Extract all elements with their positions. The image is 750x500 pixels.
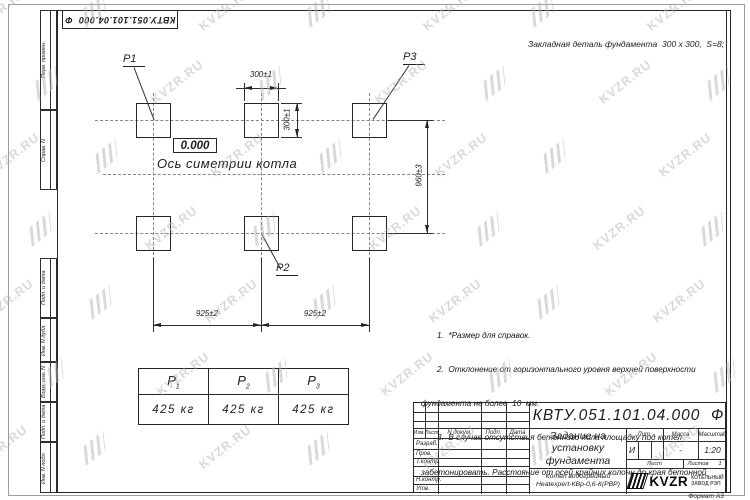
side-column-divider — [50, 319, 51, 361]
dimension-arrow — [425, 120, 429, 128]
dimension-arrow — [261, 323, 269, 327]
dimension-arrow — [253, 323, 261, 327]
titleblock-line — [638, 441, 639, 459]
tb-title-line: установку — [552, 442, 604, 455]
load-table-value: 425 кг — [209, 395, 279, 425]
tb-scale-value: 1:20 — [698, 441, 727, 459]
foundation-pad-p3 — [352, 103, 387, 138]
side-column-divider — [50, 111, 51, 189]
tb-col-izm-list: Изм.Лист — [414, 428, 438, 438]
side-column-label: Перв. примен. — [41, 11, 50, 109]
tb-sig-prov: Пров. — [416, 449, 438, 458]
side-column-divider — [50, 259, 51, 317]
side-column-label: Подп. и дата — [41, 259, 50, 317]
tb-doc-number: КВТУ.051.101.04.000 Ф — [530, 403, 727, 428]
side-column-inv-dubl: Инв. N дубл. — [40, 318, 57, 362]
tb-title-line: Задание на — [550, 430, 606, 443]
dimension-arrow — [153, 323, 161, 327]
centerline-boiler-axis — [103, 174, 445, 175]
tb-product-name: Котел водогрейный Heatexpert-КВр-0,6-К(Р… — [530, 468, 626, 494]
tb-sheets-value: 1 — [713, 459, 727, 468]
extension-line — [153, 258, 154, 332]
tb-title-line: фундамента — [546, 455, 611, 468]
tb-sig-nkontr: Н.контр. — [416, 476, 438, 484]
titleblock-line — [414, 412, 529, 413]
titleblock-line — [414, 421, 529, 422]
tb-sig-razrab: Разраб. — [416, 438, 438, 449]
tb-col-data: Дата — [506, 428, 529, 438]
tb-col-n-dokum: N докум. — [438, 428, 481, 438]
tb-product-line: Котел водогрейный — [546, 473, 611, 482]
company-name-line: ЗАВОД РЭП — [691, 481, 724, 487]
boiler-axis-label: Ось симетрии котла — [157, 156, 297, 171]
tb-scale-label: Масштаб — [698, 428, 727, 441]
pad-label-p1: P1 — [123, 53, 145, 67]
side-column-divider — [50, 403, 51, 441]
side-column-perv-primen: Перв. примен. — [40, 10, 57, 110]
side-column-label: Инв. N дубл. — [41, 319, 50, 361]
extension-line — [261, 258, 262, 332]
side-column-divider — [50, 443, 51, 492]
dim-pad-height: 300±1 — [283, 103, 292, 137]
level-mark: 0.000 — [173, 138, 217, 153]
title-block: Изм.Лист N докум. Подп. Дата Разраб. Про… — [413, 402, 726, 493]
extension-line — [369, 258, 370, 332]
dimension-arrow — [270, 86, 278, 90]
side-column-label: Инв. N подл. — [41, 443, 50, 492]
embed-detail-note: Закладная деталь фундамента 300 х 300, S… — [528, 39, 724, 49]
company-name: КОТЕЛЬНЫЙ ЗАВОД РЭП — [691, 475, 724, 487]
tb-mass-value: - — [663, 441, 698, 459]
side-column-label: Взам. инв. N — [41, 363, 50, 401]
note-line: 2. Отклонение от горизонтального уровня … — [421, 364, 726, 375]
side-column-sprav-n: Справ. N — [40, 110, 57, 190]
side-column-divider — [50, 363, 51, 401]
dimension-line-row-spacing — [427, 120, 428, 233]
dimension-arrow — [244, 86, 252, 90]
load-table-value: 425 кг — [279, 395, 349, 425]
dimension-arrow — [295, 103, 299, 111]
tb-lit-label: Лит. — [626, 428, 663, 441]
kvzr-logo-icon — [627, 473, 649, 489]
side-column-label: Справ. N — [41, 111, 50, 189]
foundation-pad-bottom-left — [136, 216, 171, 251]
foundation-pad-top-middle — [244, 103, 279, 138]
dim-row-spacing: 960±3 — [415, 156, 424, 196]
dimension-arrow — [295, 129, 299, 137]
load-table-header: P2 — [209, 369, 279, 395]
side-column-podp-data-1: Подп. и дата — [40, 258, 57, 318]
side-column-label: Подп. и дата — [41, 403, 50, 441]
load-table-header: P3 — [279, 369, 349, 395]
load-table-header-row: P1 P2 P3 — [139, 369, 349, 395]
dim-span-right: 925±2 — [290, 309, 340, 318]
load-table: P1 P2 P3 425 кг 425 кг 425 кг — [138, 368, 349, 425]
side-column-divider — [50, 11, 51, 109]
dim-span-left: 925±2 — [182, 309, 232, 318]
corner-doc-number-stamp: КВТУ.051.101.04.000 Ф — [62, 10, 178, 29]
dim-pad-width: 300±1 — [236, 70, 286, 79]
titleblock-line — [651, 441, 652, 459]
extension-line — [278, 83, 279, 101]
note-line: 1. *Размер для справок. — [421, 330, 726, 341]
tb-sheet-label: Лист — [626, 459, 683, 468]
tb-col-podp: Подп. — [481, 428, 506, 438]
load-table-value: 425 кг — [139, 395, 209, 425]
company-logo-cell: KVZR КОТЕЛЬНЫЙ ЗАВОД РЭП — [627, 468, 726, 494]
kvzr-logo-text: KVZR — [649, 474, 688, 489]
tb-sig-tkontr: Т.контр. — [416, 458, 438, 466]
tb-sheets-label: Листов — [683, 459, 713, 468]
dimension-arrow — [361, 323, 369, 327]
foundation-pad-p1 — [136, 103, 171, 138]
load-table-value-row: 425 кг 425 кг 425 кг — [139, 395, 349, 425]
dimension-arrow — [425, 225, 429, 233]
tb-sig-utv: Утв. — [416, 484, 438, 494]
foundation-pad-bottom-right — [352, 216, 387, 251]
corner-doc-number: КВТУ.051.101.04.000 Ф — [65, 15, 175, 25]
side-column-inv-podl: Инв. N подл. — [40, 442, 57, 493]
titleblock-line — [414, 466, 529, 467]
pad-label-p3: P3 — [403, 51, 425, 65]
extension-line — [388, 233, 433, 234]
tb-mass-label: Масса — [663, 428, 698, 441]
tb-product-line: Heatexpert-КВр-0,6-К(РВР) — [536, 481, 620, 490]
load-table-header: P1 — [139, 369, 209, 395]
drawing-sheet: КВТУ.051.101.04.000 Ф Перв. примен. Спра… — [0, 0, 750, 500]
side-column-podp-data-2: Подп. и дата — [40, 402, 57, 442]
extension-line — [281, 137, 302, 138]
format-label: Формат А3 — [681, 493, 731, 500]
side-column-vzam-inv: Взам. инв. N — [40, 362, 57, 402]
tb-title: Задание на установку фундамента — [530, 429, 626, 468]
tb-lit-value: И — [626, 441, 638, 459]
